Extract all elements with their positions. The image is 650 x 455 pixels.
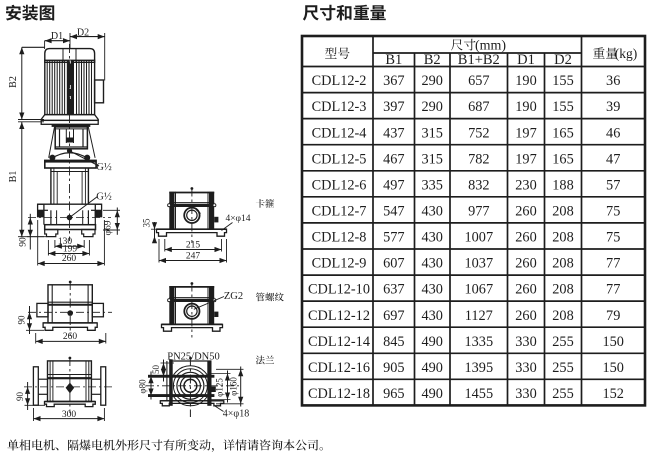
svg-text:255: 255 xyxy=(552,386,573,402)
svg-text:290: 290 xyxy=(421,73,442,89)
svg-text:CDL12-18: CDL12-18 xyxy=(308,386,370,402)
svg-text:208: 208 xyxy=(552,204,573,220)
svg-text:90: 90 xyxy=(17,315,27,325)
svg-text:57: 57 xyxy=(606,177,620,193)
svg-text:D2: D2 xyxy=(554,52,572,68)
svg-text:190: 190 xyxy=(515,99,536,115)
svg-text:1037: 1037 xyxy=(465,256,494,272)
svg-text:CDL12-10: CDL12-10 xyxy=(308,282,370,298)
svg-text:490: 490 xyxy=(421,360,442,376)
svg-text:657: 657 xyxy=(468,73,489,89)
svg-text:90: 90 xyxy=(19,237,29,247)
svg-text:39: 39 xyxy=(606,99,620,115)
svg-text:G½: G½ xyxy=(96,162,112,173)
svg-text:CDL12-6: CDL12-6 xyxy=(312,177,367,193)
svg-text:190: 190 xyxy=(515,73,536,89)
svg-text:687: 687 xyxy=(468,99,489,115)
svg-text:230: 230 xyxy=(515,177,536,193)
svg-text:4×φ14: 4×φ14 xyxy=(225,214,250,224)
svg-text:577: 577 xyxy=(383,230,404,246)
svg-text:CDL12-2: CDL12-2 xyxy=(312,73,367,89)
svg-text:CDL12-9: CDL12-9 xyxy=(312,256,367,272)
svg-text:497: 497 xyxy=(383,177,404,193)
svg-text:46: 46 xyxy=(606,125,620,141)
svg-text:845: 845 xyxy=(383,334,404,350)
svg-text:260: 260 xyxy=(62,254,77,264)
svg-text:CDL12-12: CDL12-12 xyxy=(308,308,370,324)
svg-text:(kg): (kg) xyxy=(615,46,638,61)
svg-text:79: 79 xyxy=(606,308,620,324)
svg-text:607: 607 xyxy=(383,256,404,272)
svg-text:1127: 1127 xyxy=(465,308,493,324)
svg-text:330: 330 xyxy=(515,386,536,402)
svg-text:155: 155 xyxy=(552,99,573,115)
svg-text:75: 75 xyxy=(606,230,620,246)
svg-text:B1: B1 xyxy=(385,52,402,68)
svg-text:φ160: φ160 xyxy=(229,377,239,396)
svg-text:φ69: φ69 xyxy=(104,220,114,235)
svg-text:367: 367 xyxy=(383,73,404,89)
svg-text:197: 197 xyxy=(515,151,536,167)
svg-text:B2: B2 xyxy=(424,52,441,68)
svg-text:35: 35 xyxy=(142,218,152,228)
svg-text:1067: 1067 xyxy=(465,282,494,298)
svg-text:ZG2: ZG2 xyxy=(224,291,243,302)
svg-text:208: 208 xyxy=(552,282,573,298)
svg-text:430: 430 xyxy=(421,230,442,246)
svg-text:CDL12-16: CDL12-16 xyxy=(308,360,370,376)
svg-text:165: 165 xyxy=(552,125,573,141)
svg-text:335: 335 xyxy=(421,177,442,193)
svg-text:47: 47 xyxy=(606,151,620,167)
svg-text:752: 752 xyxy=(468,125,489,141)
svg-text:397: 397 xyxy=(383,99,404,115)
svg-text:965: 965 xyxy=(383,386,404,402)
svg-text:CDL12-8: CDL12-8 xyxy=(312,230,367,246)
svg-text:905: 905 xyxy=(383,360,404,376)
svg-text:90: 90 xyxy=(15,392,25,402)
svg-text:1335: 1335 xyxy=(465,334,494,350)
svg-text:315: 315 xyxy=(421,151,442,167)
svg-text:75: 75 xyxy=(606,204,620,220)
svg-text:430: 430 xyxy=(421,308,442,324)
svg-text:77: 77 xyxy=(606,256,620,272)
svg-text:188: 188 xyxy=(552,177,573,193)
svg-text:B2: B2 xyxy=(8,76,19,88)
svg-text:490: 490 xyxy=(421,334,442,350)
svg-text:CDL12-4: CDL12-4 xyxy=(312,125,367,141)
svg-text:150: 150 xyxy=(602,334,623,350)
svg-text:50: 50 xyxy=(151,365,161,375)
svg-text:255: 255 xyxy=(552,360,573,376)
svg-text:CDL12-3: CDL12-3 xyxy=(312,99,367,115)
svg-text:CDL12-14: CDL12-14 xyxy=(308,334,370,350)
svg-text:155: 155 xyxy=(552,73,573,89)
svg-text:430: 430 xyxy=(421,282,442,298)
svg-text:260: 260 xyxy=(63,332,78,342)
svg-text:255: 255 xyxy=(552,334,573,350)
svg-text:430: 430 xyxy=(421,204,442,220)
svg-text:260: 260 xyxy=(515,308,536,324)
svg-text:330: 330 xyxy=(515,360,536,376)
svg-text:637: 637 xyxy=(383,282,404,298)
svg-text:36: 36 xyxy=(606,73,620,89)
svg-text:437: 437 xyxy=(383,125,404,141)
svg-text:197: 197 xyxy=(515,125,536,141)
svg-text:490: 490 xyxy=(421,386,442,402)
svg-text:4×φ18: 4×φ18 xyxy=(223,409,249,420)
svg-text:165: 165 xyxy=(552,151,573,167)
svg-text:260: 260 xyxy=(515,204,536,220)
svg-text:977: 977 xyxy=(468,204,489,220)
svg-text:152: 152 xyxy=(602,386,623,402)
svg-text:260: 260 xyxy=(515,256,536,272)
svg-text:D1: D1 xyxy=(517,52,535,68)
svg-text:CDL12-7: CDL12-7 xyxy=(312,204,367,220)
svg-text:430: 430 xyxy=(421,256,442,272)
svg-text:315: 315 xyxy=(421,125,442,141)
svg-text:260: 260 xyxy=(515,282,536,298)
svg-text:1395: 1395 xyxy=(465,360,494,376)
svg-text:B1+B2: B1+B2 xyxy=(458,52,500,68)
svg-text:φ80: φ80 xyxy=(138,379,148,394)
svg-text:150: 150 xyxy=(602,360,623,376)
svg-text:697: 697 xyxy=(383,308,404,324)
svg-text:φ125: φ125 xyxy=(214,378,224,397)
svg-text:782: 782 xyxy=(468,151,489,167)
svg-text:467: 467 xyxy=(383,151,404,167)
svg-text:G½: G½ xyxy=(96,192,112,203)
svg-text:290: 290 xyxy=(421,99,442,115)
svg-text:208: 208 xyxy=(552,308,573,324)
svg-text:832: 832 xyxy=(468,177,489,193)
svg-text:208: 208 xyxy=(552,230,573,246)
svg-text:208: 208 xyxy=(552,256,573,272)
svg-text:260: 260 xyxy=(515,230,536,246)
svg-text:B1: B1 xyxy=(8,171,19,183)
svg-text:547: 547 xyxy=(383,204,404,220)
svg-text:1455: 1455 xyxy=(465,386,494,402)
svg-text:330: 330 xyxy=(515,334,536,350)
svg-text:CDL12-5: CDL12-5 xyxy=(312,151,367,167)
svg-text:1007: 1007 xyxy=(465,230,494,246)
svg-text:77: 77 xyxy=(606,282,620,298)
